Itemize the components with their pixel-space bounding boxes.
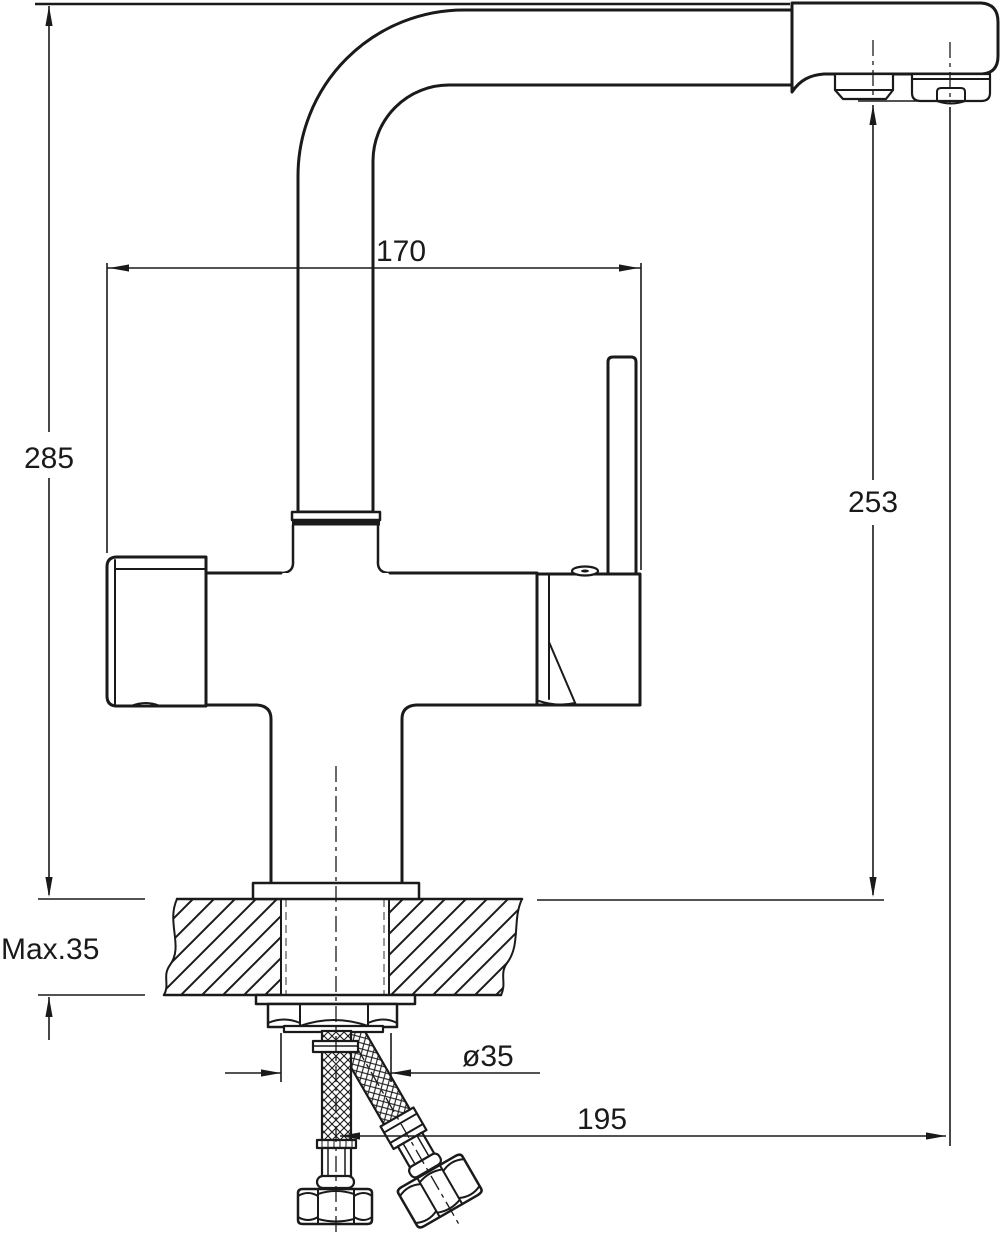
lever-handle bbox=[608, 357, 636, 574]
riser-neck bbox=[281, 525, 390, 573]
lever-pivot-dot bbox=[581, 570, 589, 573]
aerator-filtered-water bbox=[835, 74, 893, 99]
countertop-section bbox=[164, 899, 522, 995]
spout-arm bbox=[298, 10, 792, 512]
technical-drawing-canvas: 170 285 253 Max.35 bbox=[0, 0, 1000, 1236]
handle-left bbox=[107, 557, 206, 706]
dim-253-group: 253 bbox=[537, 101, 924, 900]
dim-label-counter-thickness: Max.35 bbox=[1, 933, 99, 966]
dim-max35-group: Max.35 bbox=[1, 899, 145, 1040]
dim-label-reach: 195 bbox=[577, 1103, 627, 1136]
handle-right bbox=[537, 574, 640, 705]
dim-label-hole-diameter: ø35 bbox=[462, 1040, 514, 1073]
locknut bbox=[268, 1004, 397, 1027]
faucet-body bbox=[107, 3, 998, 899]
countertop-hatch-right bbox=[389, 899, 522, 995]
dim-label-overall-height: 285 bbox=[24, 442, 74, 475]
shank-thread-dashed bbox=[286, 899, 384, 995]
body-fill bbox=[206, 573, 537, 705]
dim-285-group: 285 bbox=[24, 6, 74, 897]
dim-label-outlet-height: 253 bbox=[848, 486, 898, 519]
riser-collar bbox=[292, 512, 380, 520]
countertop-hatch-left bbox=[164, 899, 281, 995]
dim-label-width: 170 bbox=[376, 235, 426, 268]
faucet-dimension-drawing: 170 285 253 Max.35 bbox=[0, 0, 1000, 1236]
shank-tube bbox=[281, 899, 389, 995]
